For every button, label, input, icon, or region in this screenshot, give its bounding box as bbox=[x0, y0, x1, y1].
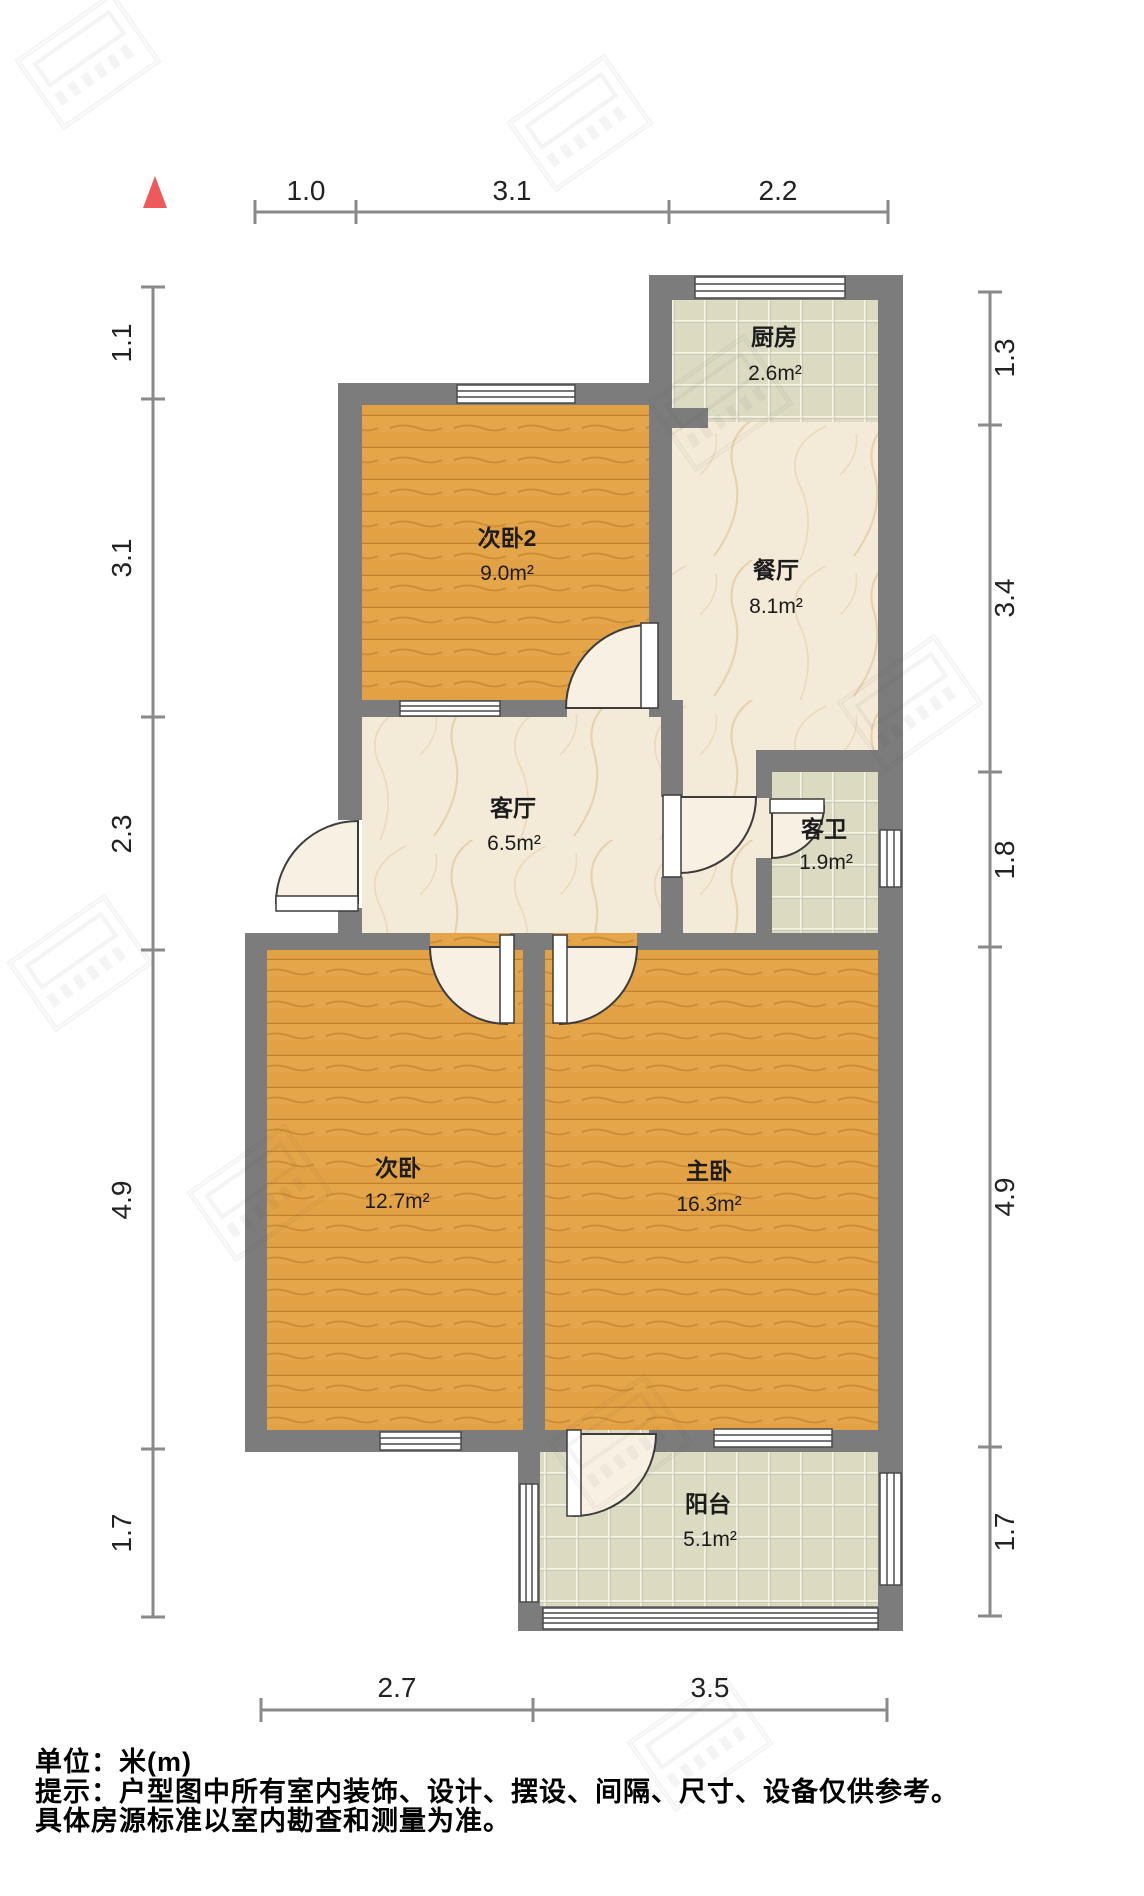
wall bbox=[510, 933, 553, 950]
room-area-living: 6.5m² bbox=[487, 832, 541, 855]
dim-top-1: 3.1 bbox=[493, 175, 532, 206]
dim-left-1: 3.1 bbox=[106, 539, 137, 578]
dim-right-2: 1.8 bbox=[989, 841, 1020, 880]
wall bbox=[878, 275, 903, 1631]
dim-top-0: 1.0 bbox=[287, 175, 326, 206]
wall bbox=[661, 700, 683, 797]
bedroom2-top-window bbox=[457, 385, 575, 403]
room-label-kitchen: 厨房 bbox=[751, 324, 797, 350]
room-label-bedroom: 次卧 bbox=[375, 1155, 421, 1181]
bedroom-window bbox=[380, 1432, 461, 1450]
wall bbox=[756, 858, 772, 934]
balcony-bottom-window bbox=[543, 1608, 878, 1629]
footer-notes: 单位：米(m) 提示：户型图中所有室内装饰、设计、摆设、间隔、尺寸、设备仅供参考… bbox=[35, 1748, 1115, 1837]
dim-right-1: 3.4 bbox=[989, 579, 1020, 618]
bath-window bbox=[880, 830, 901, 887]
room-label-dining: 餐厅 bbox=[753, 557, 799, 583]
floor-plan: 厨房 2.6m² 次卧2 9.0m² 餐厅 8.1m² 客厅 6.5m² 客卫 … bbox=[0, 0, 1144, 1891]
master-window bbox=[714, 1429, 832, 1447]
room-area-master: 16.3m² bbox=[676, 1193, 741, 1216]
disclaimer-note: 提示：户型图中所有室内装饰、设计、摆设、间隔、尺寸、设备仅供参考。 bbox=[35, 1778, 1115, 1808]
dim-right-3: 4.9 bbox=[989, 1178, 1020, 1217]
kitchen-window bbox=[695, 277, 845, 298]
dim-left-4: 1.7 bbox=[106, 1514, 137, 1553]
dim-left-2: 2.3 bbox=[106, 815, 137, 854]
dim-top-2: 2.2 bbox=[759, 175, 798, 206]
dim-right-4: 1.7 bbox=[989, 1513, 1020, 1552]
wall bbox=[637, 933, 903, 950]
room-label-living: 客厅 bbox=[490, 795, 536, 821]
wall bbox=[245, 933, 430, 950]
room-area-bath: 1.9m² bbox=[799, 851, 853, 874]
dim-left-0: 1.1 bbox=[106, 324, 137, 363]
north-arrow-icon bbox=[143, 176, 167, 208]
disclaimer-note-2: 具体房源标准以室内勘查和测量为准。 bbox=[35, 1807, 1115, 1837]
entry-door bbox=[276, 821, 358, 911]
room-label-bedroom2: 次卧2 bbox=[478, 525, 537, 551]
unit-note: 单位：米(m) bbox=[35, 1748, 1115, 1778]
wall bbox=[523, 950, 545, 1430]
wall bbox=[338, 383, 362, 820]
dim-bottom-0: 2.7 bbox=[378, 1672, 417, 1703]
living-transom-window bbox=[400, 701, 500, 716]
wall bbox=[756, 750, 772, 798]
room-area-dining: 8.1m² bbox=[749, 595, 803, 618]
room-area-bedroom2: 9.0m² bbox=[480, 562, 534, 585]
wall bbox=[756, 750, 878, 772]
balcony-left-window bbox=[520, 1484, 538, 1602]
room-label-balcony: 阳台 bbox=[685, 1491, 731, 1517]
room-area-balcony: 5.1m² bbox=[683, 1528, 737, 1551]
room-area-bedroom: 12.7m² bbox=[364, 1190, 429, 1213]
balcony-right-window bbox=[880, 1473, 901, 1585]
dim-left-3: 4.9 bbox=[106, 1181, 137, 1220]
room-label-master: 主卧 bbox=[686, 1158, 732, 1184]
room-label-bath: 客卫 bbox=[801, 816, 847, 842]
dim-right-0: 1.3 bbox=[989, 339, 1020, 378]
